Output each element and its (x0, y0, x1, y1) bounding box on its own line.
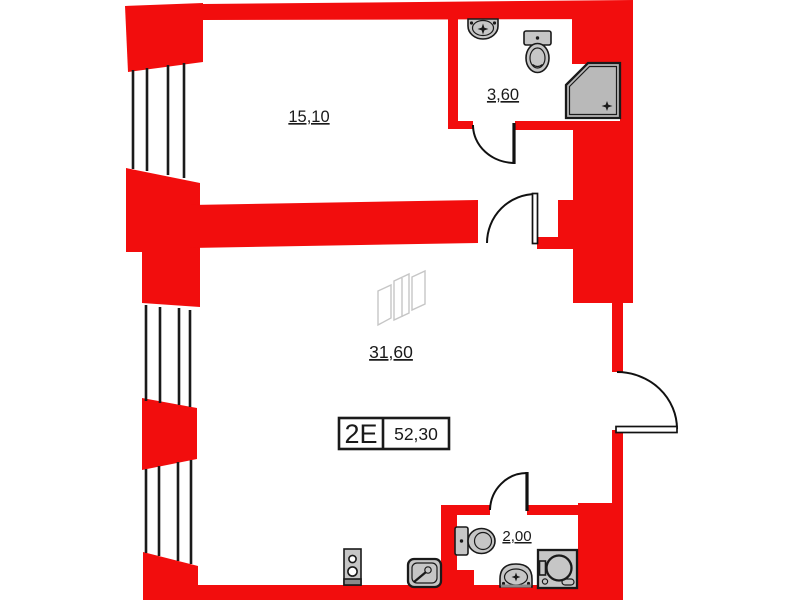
wc-sink-icon (500, 564, 532, 588)
wall-wc-top-left (457, 505, 490, 515)
wall-left-lower-block (142, 398, 197, 470)
wall-left-mid-block (126, 168, 200, 307)
toilet-icon (524, 31, 551, 73)
unit-area-label: 52,30 (394, 424, 438, 444)
wall-bath-left (448, 18, 458, 128)
wall-right-lower-narrow (612, 430, 623, 505)
unit-id-label: 2E (344, 419, 377, 449)
door-room-divider-icon (487, 194, 538, 244)
shower-icon (566, 63, 620, 118)
room-label-3-60: 3,60 (487, 86, 519, 104)
stove-icon (344, 549, 361, 585)
floor-plan-svg: 15,10 3,60 31,60 2,00 2E 52,30 (0, 0, 800, 600)
wall-top-right-block (572, 1, 633, 64)
window-bottom-icon (146, 460, 191, 564)
washing-machine-icon (538, 550, 577, 588)
room-label-15-10: 15,10 (288, 108, 329, 126)
kitchen-sink-icon (408, 559, 441, 587)
sink-icon (468, 19, 498, 39)
unit-info-box: 2E 52,30 (339, 418, 449, 449)
room-label-31-60: 31,60 (369, 342, 413, 362)
wall-bath-bottom-left (448, 121, 473, 129)
wall-right-upper-narrow (612, 303, 623, 372)
wall-wc-top-right (527, 505, 578, 515)
door-entrance-icon (616, 372, 677, 433)
room-label-2-00: 2,00 (502, 528, 531, 545)
wall-top-strip (203, 0, 633, 20)
wall-room-divider (190, 200, 478, 248)
floor-plan: 15,10 3,60 31,60 2,00 2E 52,30 (0, 0, 800, 600)
window-top-icon (133, 63, 184, 178)
wall-right-column (573, 121, 633, 303)
door-bathroom-upper-icon (473, 123, 515, 164)
wall-right-of-shower (620, 60, 633, 126)
door-wc-lower-icon (490, 472, 527, 511)
window-middle-icon (146, 305, 190, 407)
wc-toilet-icon (455, 527, 495, 555)
wall-top-left-block (125, 3, 203, 72)
wall-door-hinge-strip (537, 237, 573, 249)
orientation-marker-icon (378, 271, 425, 325)
